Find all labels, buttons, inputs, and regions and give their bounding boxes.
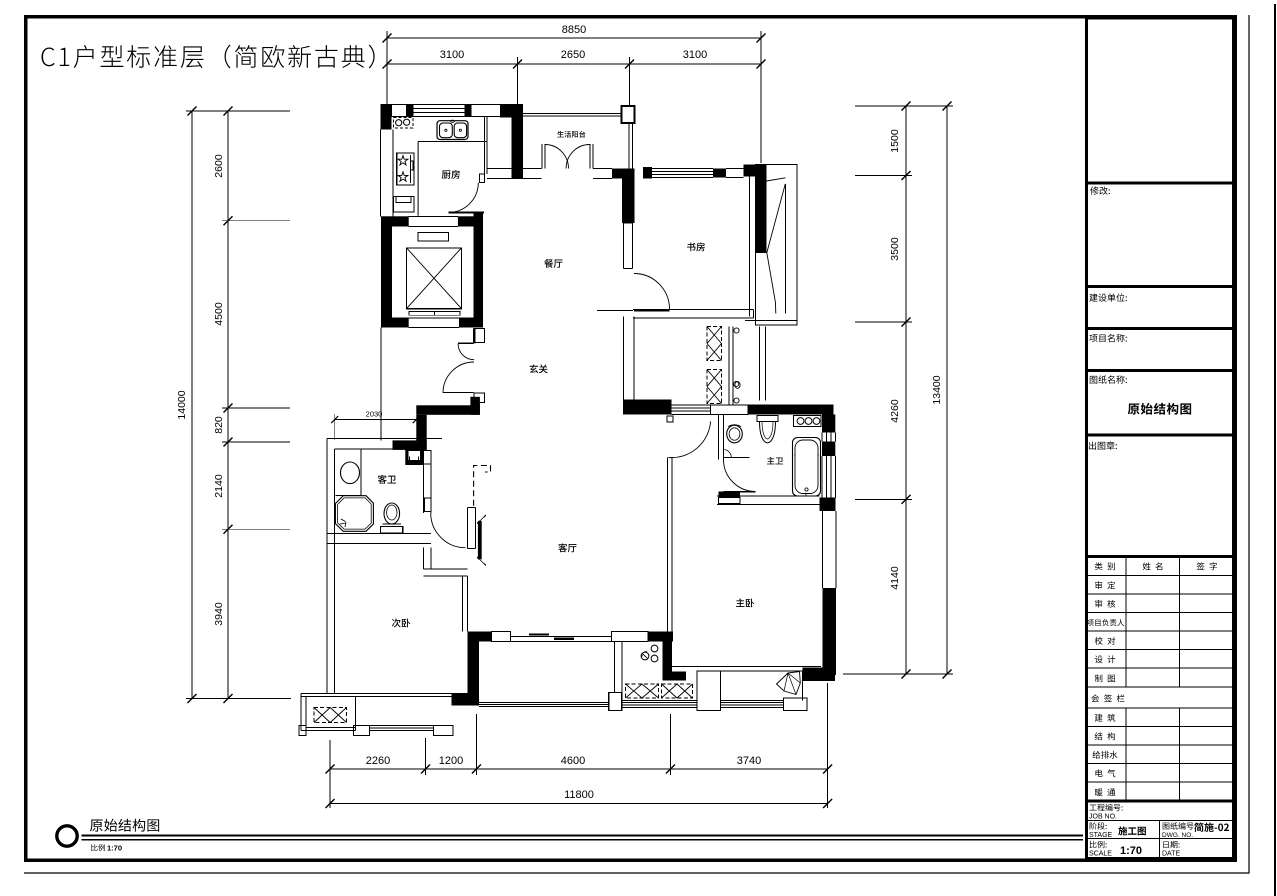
svg-text:820: 820	[213, 416, 225, 434]
svg-text:2030: 2030	[366, 410, 383, 419]
svg-text:3940: 3940	[213, 602, 225, 626]
svg-text:3100: 3100	[683, 49, 707, 61]
svg-text:STAGE: STAGE	[1089, 832, 1113, 839]
svg-text:DWG. NO.: DWG. NO.	[1162, 832, 1193, 839]
svg-text:3740: 3740	[737, 755, 761, 767]
svg-text:1500: 1500	[889, 129, 901, 153]
svg-text:2260: 2260	[366, 755, 390, 767]
svg-text:4600: 4600	[561, 755, 585, 767]
svg-text:14000: 14000	[176, 390, 188, 419]
svg-text:1200: 1200	[439, 755, 463, 767]
svg-text:JOB NO.: JOB NO.	[1089, 814, 1117, 821]
svg-text:3500: 3500	[889, 237, 901, 261]
svg-text:2650: 2650	[561, 49, 585, 61]
svg-text:8850: 8850	[562, 24, 586, 36]
svg-text:2140: 2140	[213, 474, 225, 498]
svg-text:13400: 13400	[931, 375, 943, 404]
svg-text:DATE: DATE	[1162, 851, 1180, 858]
svg-text:1:70: 1:70	[107, 844, 122, 853]
svg-text:3100: 3100	[440, 49, 464, 61]
svg-text:4140: 4140	[889, 566, 901, 590]
svg-text:4260: 4260	[889, 399, 901, 423]
svg-text:11800: 11800	[564, 789, 594, 801]
svg-text:1:70: 1:70	[1120, 845, 1142, 857]
svg-text:SCALE: SCALE	[1089, 851, 1112, 858]
svg-text:4500: 4500	[213, 302, 225, 326]
svg-text:2600: 2600	[213, 154, 225, 178]
